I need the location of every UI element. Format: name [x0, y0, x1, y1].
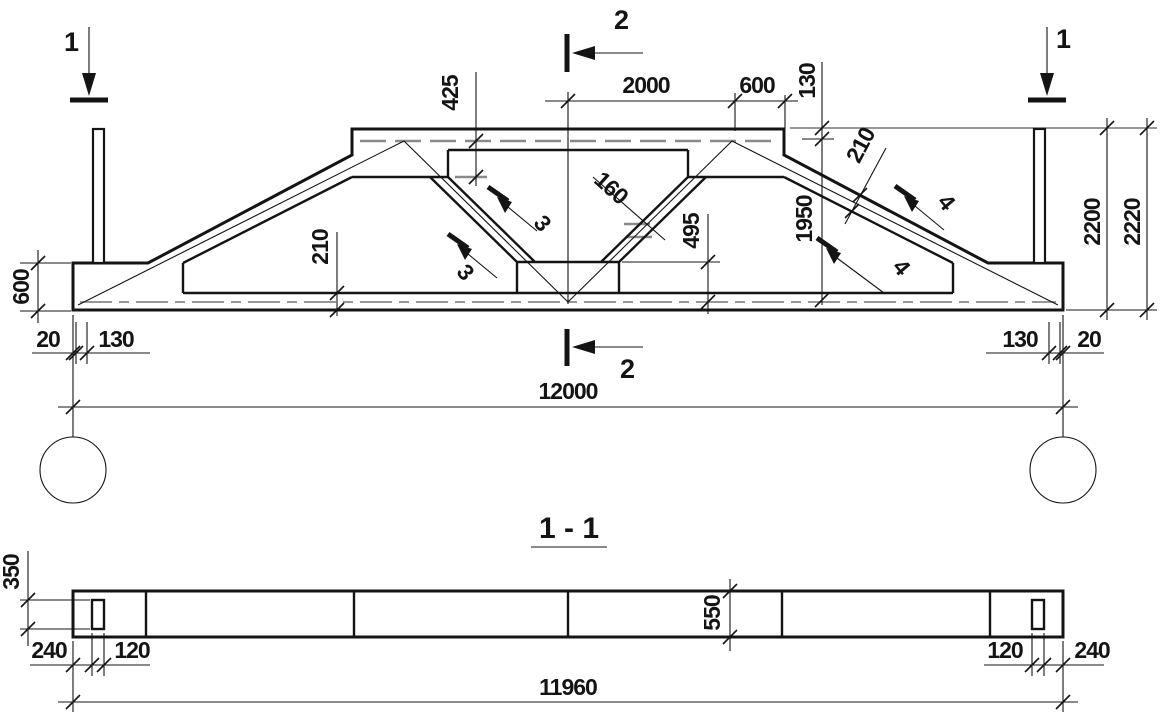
dim-20-right-label: 20: [1077, 326, 1101, 352]
dim-1950-label: 1950: [791, 195, 817, 242]
dim-120-right-label: 120: [987, 637, 1023, 663]
dim-20-left-label: 20: [36, 326, 60, 352]
cut-label-1-left: 1: [64, 27, 79, 57]
drawing-canvas: 1 1 2 2 3: [0, 0, 1161, 718]
sheet-background: [0, 0, 1161, 718]
dim-240-right-label: 240: [1074, 637, 1110, 663]
dim-130-right-label: 130: [1002, 326, 1038, 352]
cut-label-1-right: 1: [1056, 24, 1071, 54]
dim-130-top-label: 130: [794, 63, 820, 99]
dim-495-label: 495: [678, 212, 704, 249]
dim-12000-label: 12000: [539, 378, 598, 404]
cut-label-2-bottom: 2: [620, 354, 634, 384]
dim-11960-label: 11960: [539, 674, 597, 700]
dim-210-chord-label: 210: [307, 229, 333, 265]
dim-120-left-label: 120: [114, 637, 150, 663]
dim-600-top: 600: [739, 72, 775, 98]
anchor-slot-right: [1032, 600, 1044, 629]
dim-2000: 2000: [622, 72, 669, 98]
drawing-sheet: 1 1 2 2 3: [0, 0, 1161, 718]
section-title: 1 - 1: [539, 512, 599, 545]
left-anchor-post: [93, 129, 104, 263]
dim-600-left-label: 600: [8, 269, 34, 305]
dim-240-left-label: 240: [31, 637, 67, 663]
cut-label-2-top: 2: [614, 5, 628, 35]
dim-550-label: 550: [699, 595, 725, 631]
dim-425-label: 425: [437, 74, 463, 111]
right-anchor-post: [1034, 129, 1045, 263]
anchor-slot-left: [92, 600, 104, 629]
dim-350-label: 350: [0, 554, 24, 590]
dim-130-left-label: 130: [98, 326, 134, 352]
dim-2200-label: 2200: [1079, 198, 1105, 245]
dim-2220-label: 2220: [1119, 198, 1145, 245]
